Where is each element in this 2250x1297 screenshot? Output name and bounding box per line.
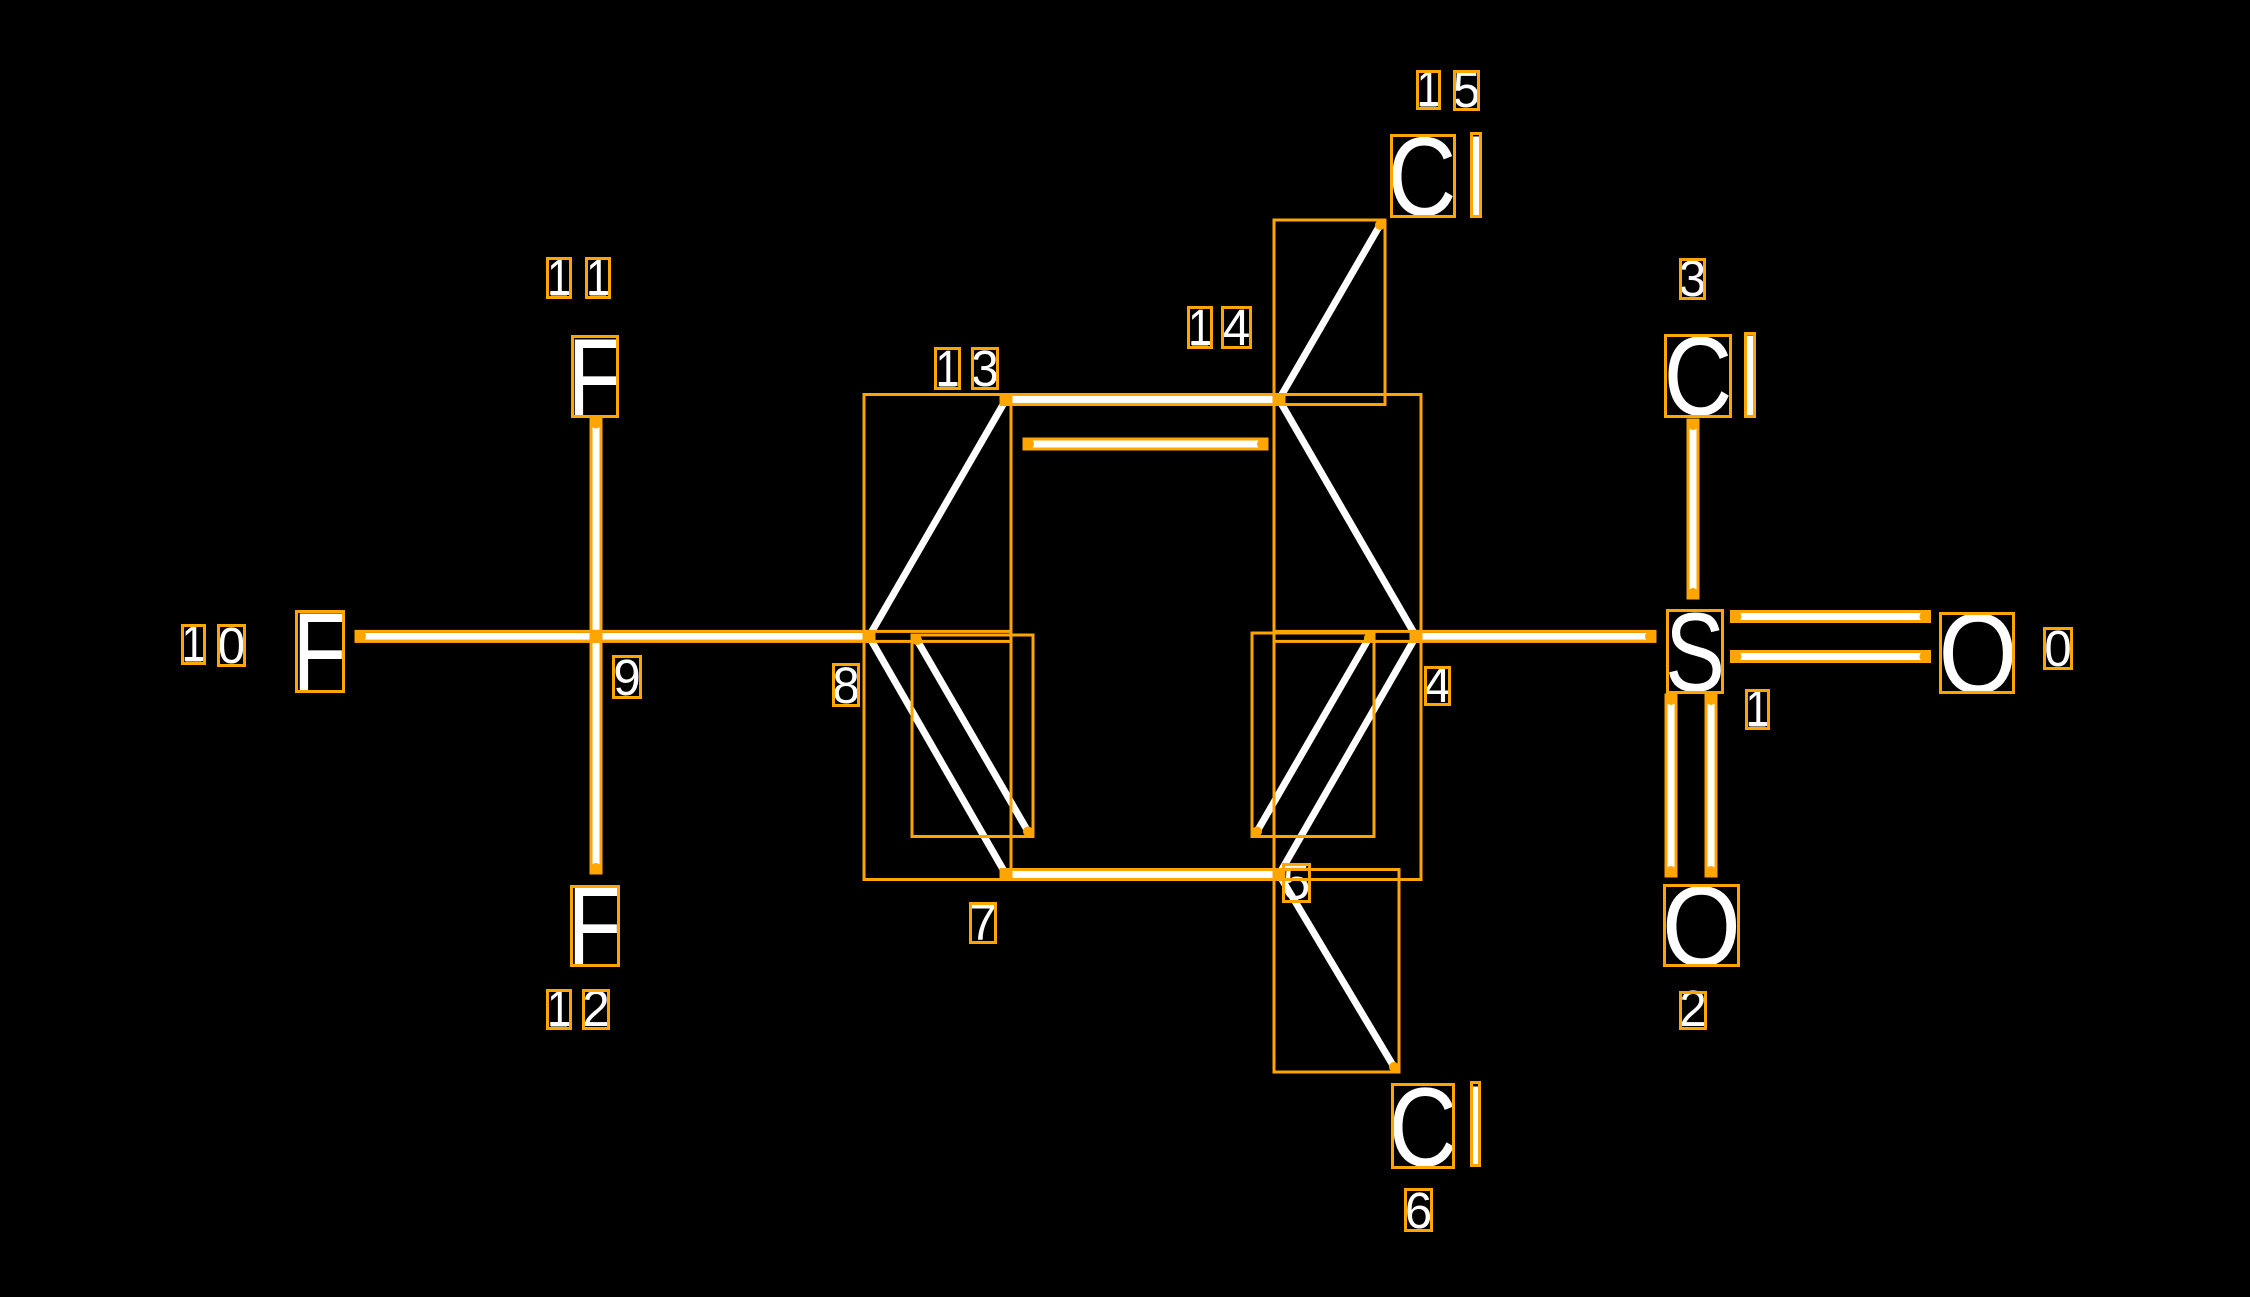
svg-text:C: C [1388, 115, 1457, 240]
svg-text:O: O [1662, 862, 1741, 990]
svg-text:O: O [1939, 589, 2018, 717]
svg-text:l: l [1464, 117, 1487, 240]
svg-text:l: l [1464, 1067, 1487, 1190]
svg-text:F: F [293, 590, 347, 714]
svg-text:F: F [568, 864, 622, 988]
